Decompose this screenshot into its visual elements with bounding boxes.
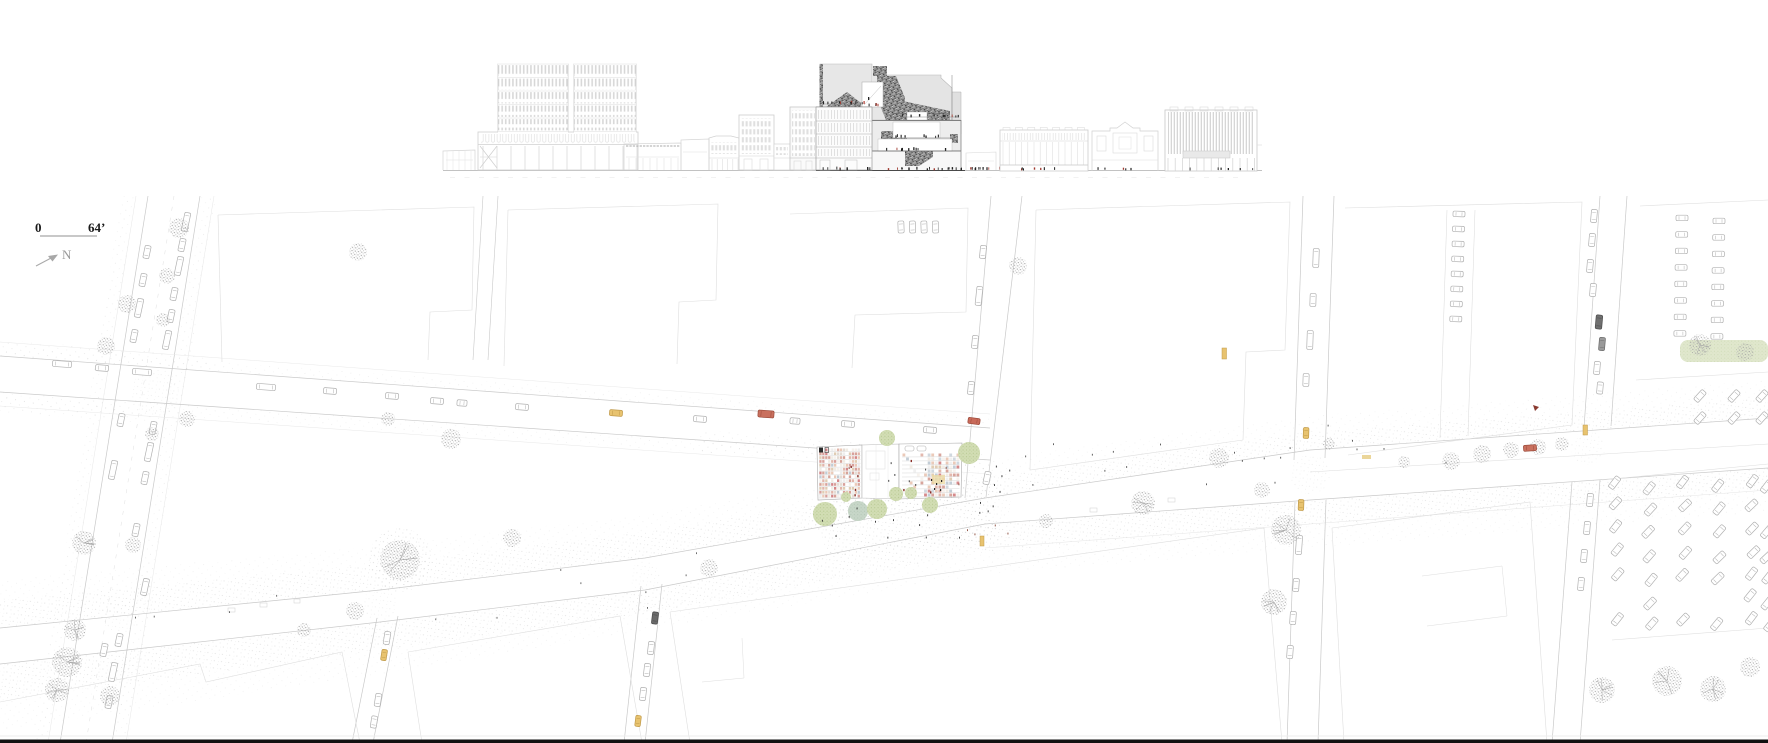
svg-text:0: 0: [35, 220, 42, 235]
svg-text:64’: 64’: [88, 220, 105, 235]
svg-text:N: N: [62, 247, 72, 262]
